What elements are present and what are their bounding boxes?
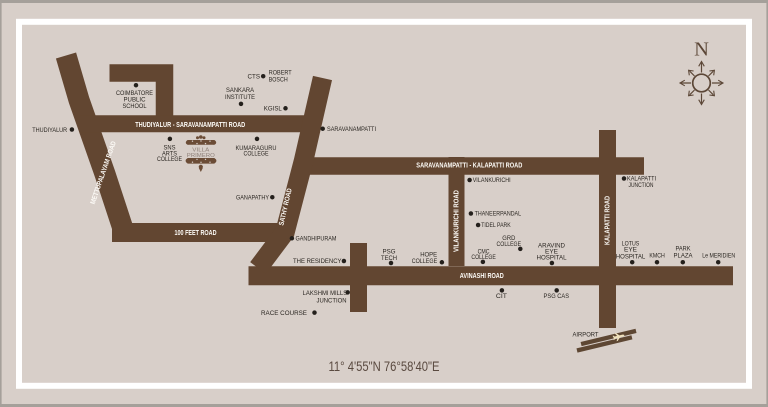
svg-text:SARAVANAMPATTI - KALAPATTI ROA: SARAVANAMPATTI - KALAPATTI ROAD <box>416 162 522 169</box>
svg-text:LAKSHMI MILLS: LAKSHMI MILLS <box>303 290 348 297</box>
svg-text:KMCH: KMCH <box>649 252 665 259</box>
svg-text:THUDIYALUR - SARAVANAMPATTI RO: THUDIYALUR - SARAVANAMPATTI ROAD <box>135 122 245 129</box>
svg-text:VILANKURICHI ROAD: VILANKURICHI ROAD <box>454 190 461 252</box>
svg-text:11° 4'55"N 76°58'40"E: 11° 4'55"N 76°58'40"E <box>329 358 440 374</box>
svg-text:PLAZA: PLAZA <box>674 253 694 260</box>
svg-text:PSG CAS: PSG CAS <box>544 293 570 300</box>
svg-text:RACE COURSE: RACE COURSE <box>261 310 308 317</box>
svg-text:HOSPITAL: HOSPITAL <box>537 254 567 261</box>
svg-text:KGISL: KGISL <box>264 106 282 113</box>
svg-text:COLLEGE: COLLEGE <box>412 258 438 265</box>
svg-text:COLLEGE: COLLEGE <box>157 156 182 163</box>
svg-text:COLLEGE: COLLEGE <box>244 151 269 158</box>
svg-text:SARAVANAMPATTI: SARAVANAMPATTI <box>327 126 376 133</box>
svg-text:KALAPATTI ROAD: KALAPATTI ROAD <box>605 196 612 245</box>
svg-text:THANEERPANDAL: THANEERPANDAL <box>475 211 522 218</box>
svg-text:N: N <box>694 39 709 61</box>
svg-text:TECH: TECH <box>381 255 397 262</box>
svg-text:THUDIYALUR: THUDIYALUR <box>32 127 67 134</box>
svg-text:INSTITUTE: INSTITUTE <box>225 94 256 101</box>
svg-text:CIT: CIT <box>496 293 507 300</box>
svg-text:PRIMERO: PRIMERO <box>187 153 216 159</box>
svg-text:JUNCTION: JUNCTION <box>317 297 347 304</box>
svg-text:SANKARA: SANKARA <box>226 87 255 94</box>
svg-text:GANAPATHY: GANAPATHY <box>236 194 269 201</box>
svg-text:TIDEL PARK: TIDEL PARK <box>481 222 511 229</box>
svg-text:COLLEGE: COLLEGE <box>471 254 496 261</box>
svg-text:COLLEGE: COLLEGE <box>497 241 522 248</box>
svg-text:ROBERT: ROBERT <box>269 69 292 76</box>
svg-text:EYE: EYE <box>624 247 638 254</box>
svg-text:CTS: CTS <box>248 73 261 80</box>
svg-text:GANDHIPURAM: GANDHIPURAM <box>296 236 337 243</box>
svg-text:VILANKURICHI: VILANKURICHI <box>473 177 511 184</box>
svg-text:AIRPORT: AIRPORT <box>573 331 599 338</box>
svg-text:SCHOOL: SCHOOL <box>123 103 147 110</box>
svg-text:100 FEET ROAD: 100 FEET ROAD <box>175 230 217 237</box>
svg-text:AVINASHI ROAD: AVINASHI ROAD <box>460 273 504 280</box>
svg-text:JUNCTION: JUNCTION <box>629 182 654 189</box>
svg-text:BOSCH: BOSCH <box>269 76 288 83</box>
svg-text:Le MERIDIEN: Le MERIDIEN <box>702 252 735 259</box>
svg-text:THE RESIDENCY: THE RESIDENCY <box>293 258 342 265</box>
svg-text:HOSPITAL: HOSPITAL <box>616 254 646 261</box>
